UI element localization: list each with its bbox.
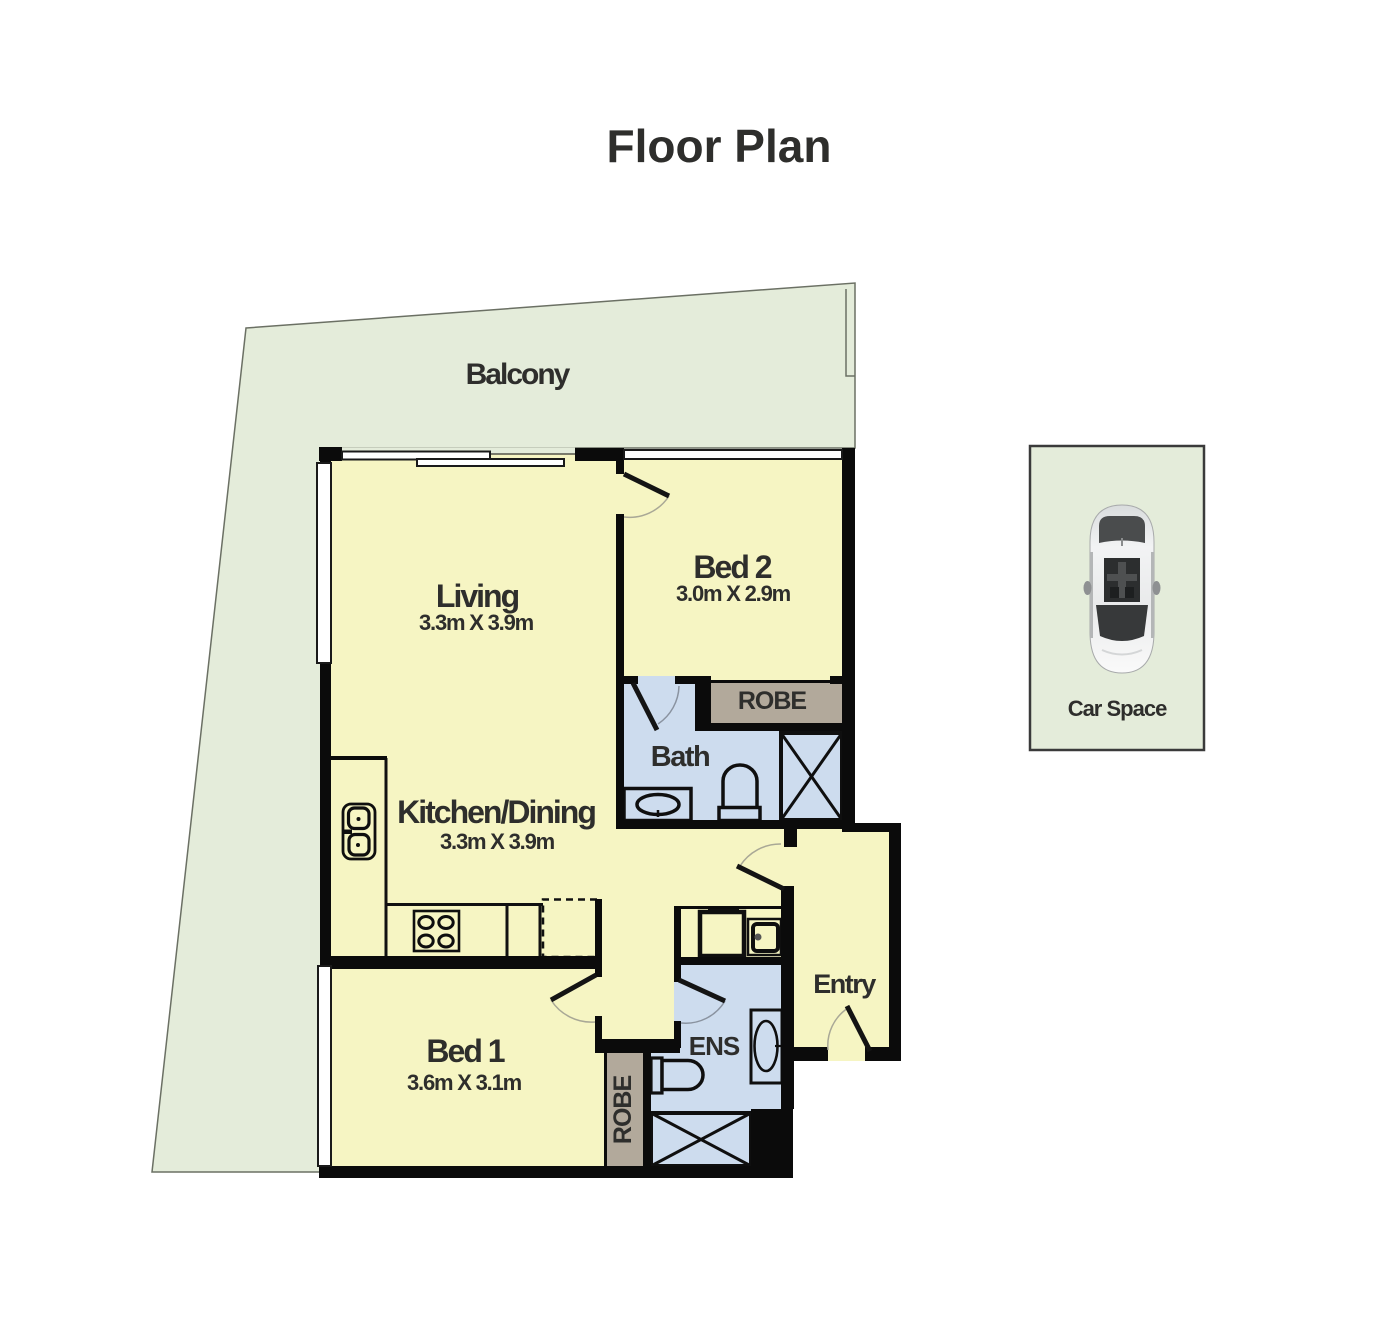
svg-text:Floor Plan: Floor Plan <box>607 120 832 172</box>
svg-text:Entry: Entry <box>813 969 876 999</box>
svg-text:Kitchen/Dining: Kitchen/Dining <box>397 794 595 830</box>
svg-text:Car Space: Car Space <box>1068 696 1167 721</box>
svg-text:3.3m X 3.9m: 3.3m X 3.9m <box>440 829 555 854</box>
svg-text:Balcony: Balcony <box>466 358 571 391</box>
svg-text:3.6m X 3.1m: 3.6m X 3.1m <box>407 1070 522 1095</box>
svg-text:ENS: ENS <box>689 1031 740 1061</box>
svg-text:Bed 1: Bed 1 <box>426 1033 504 1069</box>
svg-text:ROBE: ROBE <box>738 687 807 715</box>
svg-text:3.0m X 2.9m: 3.0m X 2.9m <box>676 581 791 606</box>
svg-text:3.3m X 3.9m: 3.3m X 3.9m <box>419 610 534 635</box>
svg-text:Living: Living <box>436 578 519 614</box>
svg-text:Bed 2: Bed 2 <box>693 549 771 585</box>
svg-text:Bath: Bath <box>651 741 709 773</box>
svg-text:ROBE: ROBE <box>609 1076 637 1145</box>
